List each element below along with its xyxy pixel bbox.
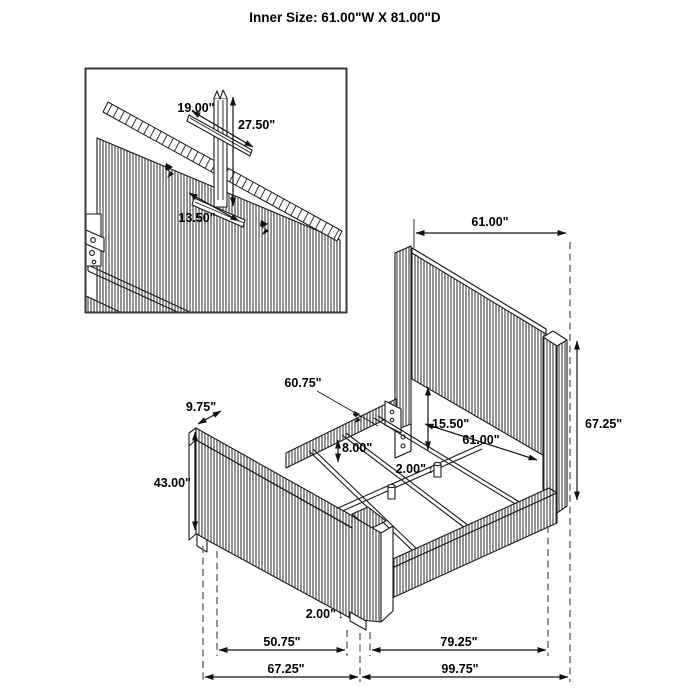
dim-label-footboard-top-depth: 9.75" [186, 400, 216, 414]
updown-arrow-icon: ↕ [338, 609, 344, 621]
bed-assembly-diagram: Inner Size: 61.00"W X 81.00"D [0, 0, 700, 700]
dim-label-cleat-width: 13.50" [178, 211, 215, 225]
dim-label-bracket-width: 19.00" [177, 101, 214, 115]
page-title: Inner Size: 61.00"W X 81.00"D [249, 10, 441, 25]
footboard-panel [196, 440, 352, 619]
dim-label-footboard-outer-span: 67.25" [267, 662, 304, 676]
headboard-right-post-side [557, 340, 567, 513]
bed-assembly-diagram-page: Inner Size: 61.00"W X 81.00"D [0, 0, 700, 700]
dim-label-rail-top-height: 8.00" [342, 441, 372, 455]
updown-arrow-icon: ↕ [428, 464, 434, 476]
footboard-right-post [352, 516, 381, 622]
dim-label-rail-span: 79.25" [440, 635, 477, 649]
leader-rail-length [317, 391, 378, 426]
dim-label-headboard-width: 61.00" [471, 215, 508, 229]
dim-label-center-leg-height: 2.00" [396, 462, 426, 476]
inset-strut-break [214, 90, 227, 99]
dim-label-footboard-height: 43.00" [154, 476, 191, 490]
inset-detail-view [86, 90, 342, 316]
dim-label-strut-height: 27.50" [238, 118, 275, 132]
dim-label-foot-leg-height: 2.00" [306, 607, 336, 621]
dim-label-panel-clearance: 15.50" [432, 417, 469, 431]
right-side-rail [381, 493, 557, 603]
dim-label-inner-width: 61.00" [462, 433, 499, 447]
inset-center-strut [214, 98, 227, 207]
footboard-right-post-inner [381, 526, 393, 622]
dim-label-footboard-inner-span: 50.75" [263, 635, 300, 649]
dim-label-overall-depth: 99.75" [441, 662, 478, 676]
headboard [395, 246, 567, 521]
headboard-right-post [543, 337, 557, 513]
dim-label-side-rail-length: 60.75" [284, 376, 321, 390]
dim-label-headboard-height: 67.25" [585, 417, 622, 431]
